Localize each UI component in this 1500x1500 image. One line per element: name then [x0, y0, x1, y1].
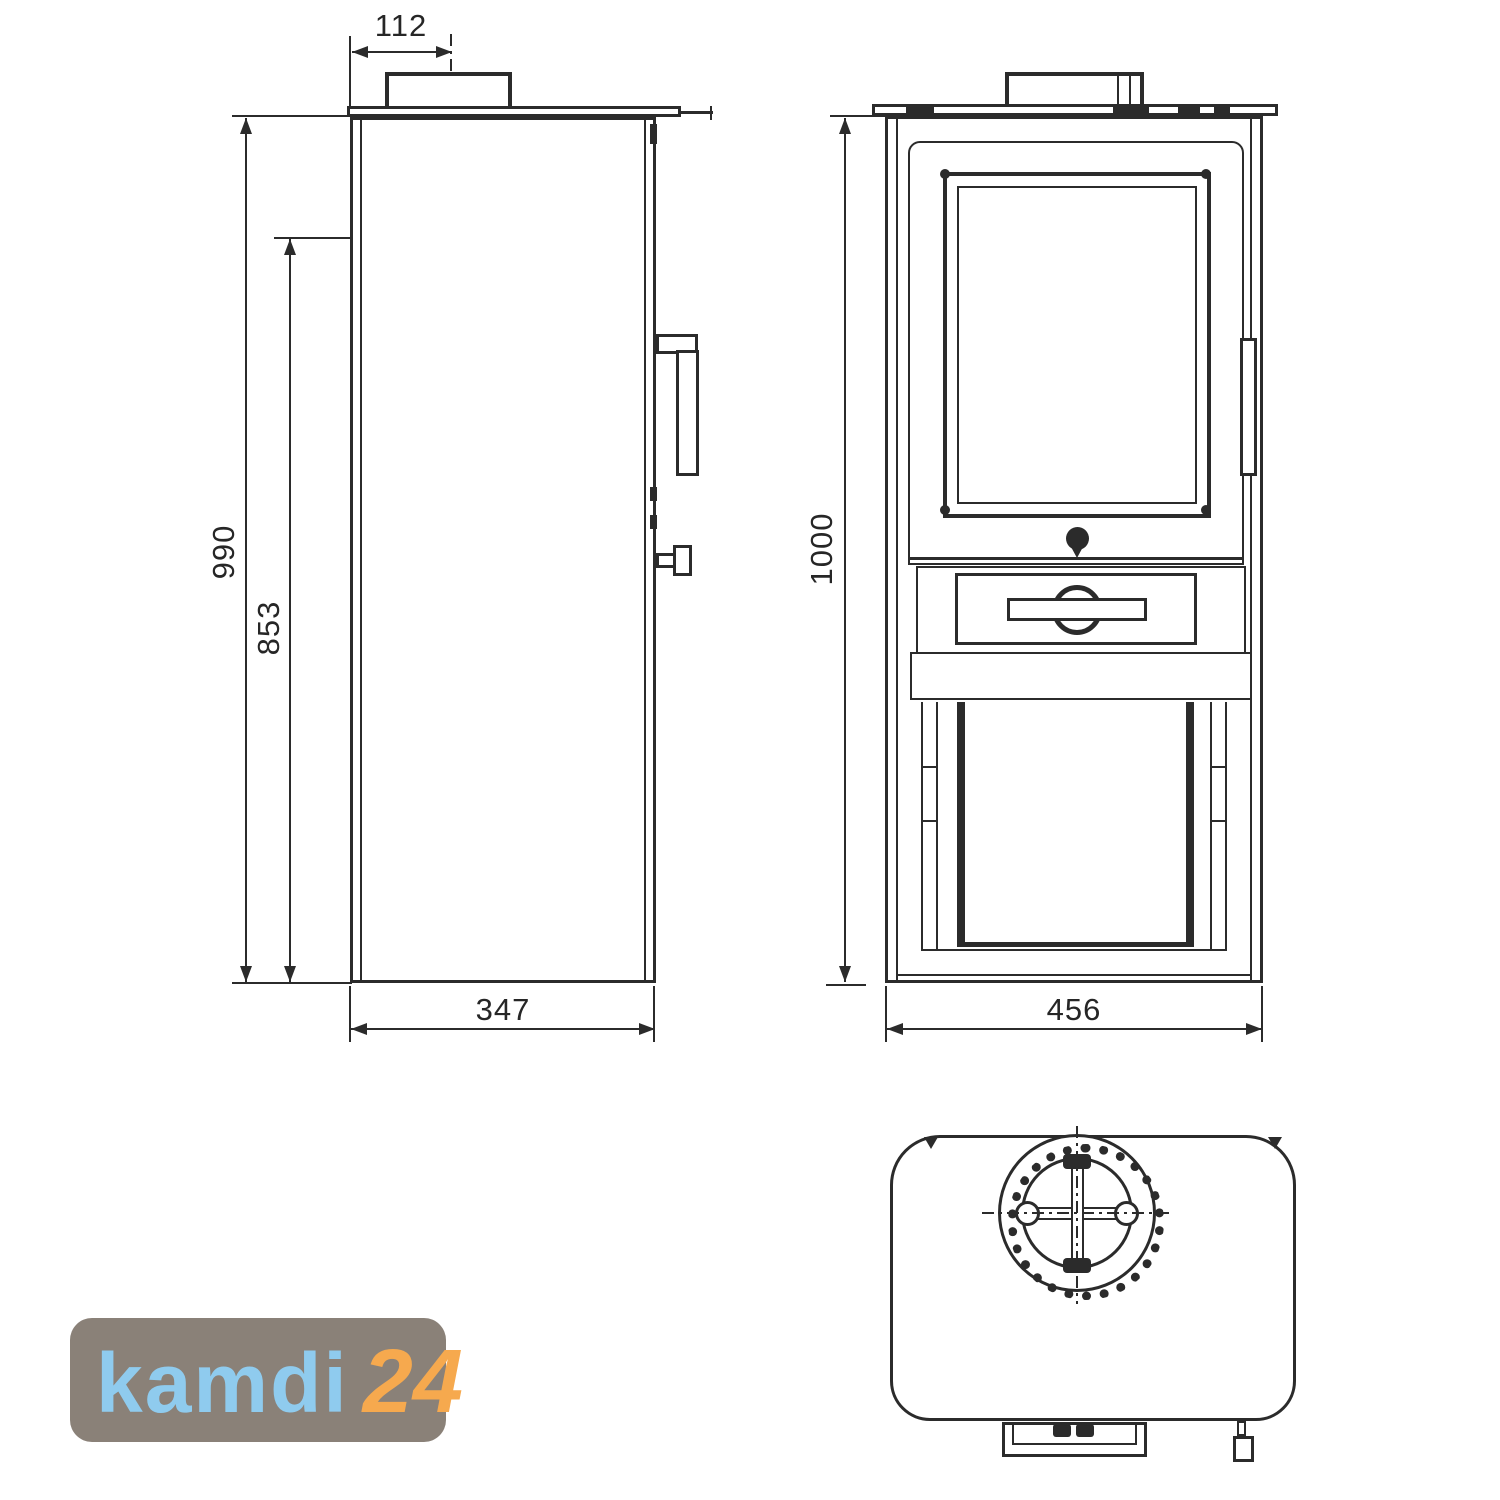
window-corner-dot-bl — [940, 505, 950, 515]
plate-seam-1 — [906, 107, 934, 113]
dim-990-extension-top — [232, 115, 350, 117]
dim-456-arrow-right — [1246, 1023, 1262, 1035]
plate-corner-mark-left — [924, 1137, 938, 1149]
stove-body-side — [350, 117, 656, 983]
latch-knob-plan — [1233, 1436, 1254, 1462]
flue-centerline-vertical — [1076, 1126, 1078, 1304]
dim-456-label: 456 — [1014, 993, 1134, 1027]
logstore-post-right-notch-2 — [1210, 820, 1227, 822]
logstore-opening-right — [1186, 702, 1194, 946]
dim-853-arrow-top — [284, 239, 296, 255]
plate-corner-mark-right — [1268, 1137, 1282, 1149]
dim-1000-arrow-bottom — [839, 966, 851, 982]
logstore-post-right-notch-1 — [1210, 766, 1227, 768]
window-corner-dot-br — [1201, 505, 1211, 515]
window-glass — [957, 186, 1197, 504]
latch-knob — [673, 545, 692, 576]
dim-853-label: 853 — [252, 568, 286, 688]
logstore-post-right-outer — [1225, 702, 1227, 950]
drawer-lower-band — [910, 652, 1252, 700]
kamdi24-logo: kamdi 24 — [70, 1318, 446, 1442]
front-inner-wall-left — [896, 119, 898, 980]
dim-112-label: 112 — [341, 9, 461, 43]
dim-1000-line — [844, 118, 846, 982]
top-plate-lip — [681, 111, 713, 114]
top-plate-side — [347, 106, 681, 117]
logo-number-text: 24 — [363, 1346, 463, 1418]
front-inner-wall-right — [1250, 119, 1252, 980]
dim-990-label: 990 — [207, 492, 241, 612]
door-plan-outline — [1002, 1422, 1147, 1457]
window-corner-dot-tr — [1201, 169, 1211, 179]
dim-990-line — [245, 118, 247, 982]
dim-347-line — [351, 1028, 655, 1030]
air-control-lever — [1007, 598, 1147, 621]
side-inner-wall-right — [644, 120, 646, 980]
logstore-post-left-notch-1 — [921, 766, 938, 768]
door-plan-handle-right — [1076, 1424, 1094, 1437]
logstore-shelf-line — [921, 949, 1227, 951]
dim-456-extension-right — [1261, 986, 1263, 1042]
door-plan-side-right — [1135, 1425, 1137, 1445]
side-inner-wall-left — [360, 120, 362, 980]
dim-990-arrow-top — [240, 118, 252, 134]
logstore-post-left-notch-2 — [921, 820, 938, 822]
dim-347-label: 347 — [443, 993, 563, 1027]
logstore-post-left-inner — [936, 702, 938, 950]
top-plate-lip-end — [710, 106, 712, 120]
plate-seam-3 — [1178, 107, 1200, 113]
flue-collar-side — [385, 72, 512, 110]
door-hinge-plate — [1240, 338, 1257, 476]
dim-456-line — [887, 1028, 1262, 1030]
door-plan-handle-left — [1053, 1424, 1071, 1437]
dim-853-line — [289, 239, 291, 982]
dim-112-arrow-left — [352, 46, 368, 58]
dim-347-extension-right — [653, 986, 655, 1042]
door-knob-tip — [1070, 545, 1084, 558]
dim-853-extension-top — [274, 237, 350, 239]
plate-seam-2 — [1113, 107, 1149, 113]
dim-990-extension-bottom — [232, 982, 352, 984]
logstore-opening-left — [957, 702, 965, 946]
dim-456-arrow-left — [887, 1023, 903, 1035]
latch-stem-plan — [1237, 1421, 1246, 1436]
dim-853-arrow-bottom — [284, 966, 296, 982]
plate-seam-4 — [1214, 107, 1230, 113]
door-handle-bar — [676, 350, 699, 476]
dim-347-extension-left — [349, 986, 351, 1042]
dim-1000-arrow-top — [839, 118, 851, 134]
dim-1000-label: 1000 — [805, 489, 839, 609]
logo-brand-text: kamdi — [96, 1349, 349, 1418]
hinge-mark-mid — [650, 487, 657, 501]
logstore-post-right-inner — [1210, 702, 1212, 950]
base-line — [897, 974, 1252, 976]
dim-1000-extension-bottom — [826, 984, 866, 986]
dim-990-arrow-bottom — [240, 966, 252, 982]
logstore-post-left-outer — [921, 702, 923, 950]
hinge-mark-top — [650, 124, 657, 144]
dim-456-extension-left — [885, 986, 887, 1042]
window-corner-dot-tl — [940, 169, 950, 179]
door-plan-side-left — [1012, 1425, 1014, 1445]
dim-347-arrow-left — [351, 1023, 367, 1035]
dim-112-extension-line — [349, 36, 351, 108]
logstore-opening-bottom — [957, 942, 1194, 947]
hinge-mark-low — [650, 515, 657, 529]
door-plan-inner-line — [1013, 1443, 1136, 1445]
